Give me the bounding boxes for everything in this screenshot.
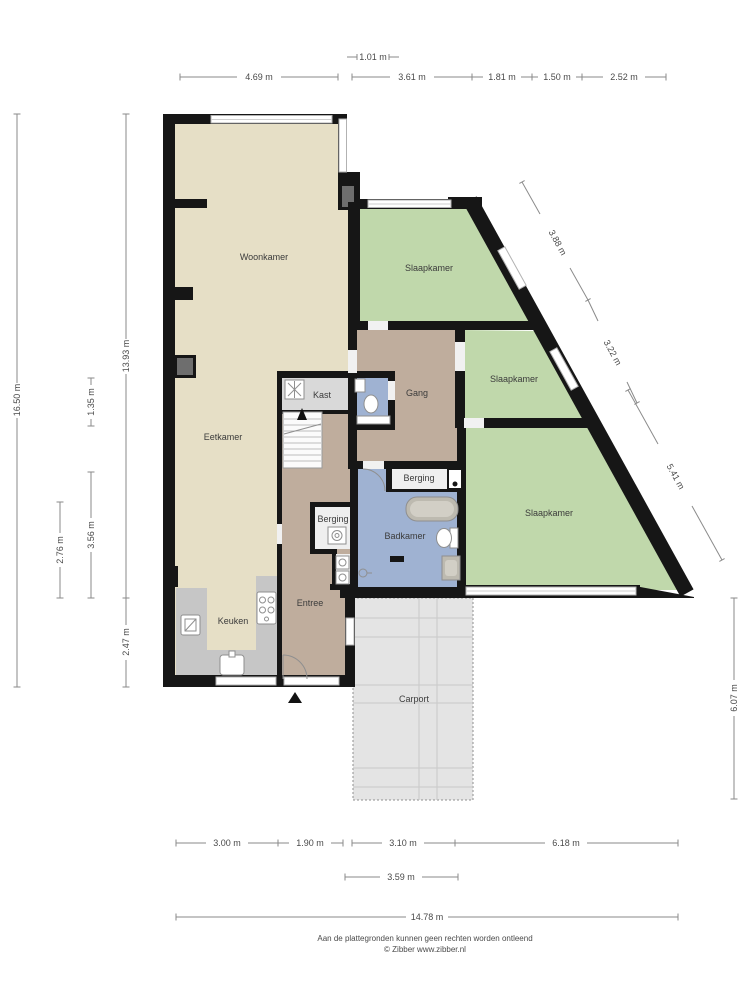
dim-label-1-90: 1.90 m (296, 838, 324, 848)
dim-label-13-93: 13.93 m (121, 340, 131, 373)
window-entree-side (346, 618, 354, 645)
label-woonkamer: Woonkamer (240, 252, 288, 262)
dim-label-14-78: 14.78 m (411, 912, 444, 922)
boiler-icon (448, 469, 462, 489)
floorplan-svg: Woonkamer Slaapkamer Slaapkamer Slaapkam… (0, 0, 750, 1000)
bathtub-icon (406, 497, 458, 521)
dim-label-3-22: 3.22 m (602, 338, 624, 367)
dim-left-column: 16.50 m 13.93 m 2.47 m 1.35 m 3.56 m 2.7… (12, 114, 131, 687)
door-slaapkamer-bottom (464, 418, 484, 428)
bathroom-toilet-icon (437, 528, 459, 548)
entrance-arrow-icon (288, 692, 302, 703)
room-slaapkamer-bottom-floor (462, 424, 681, 590)
dim-top-row: 4.69 m 3.61 m 1.81 m 1.50 m 2.52 m (180, 72, 666, 82)
stairs (283, 408, 322, 468)
flue-left (177, 358, 193, 375)
kitchen-counter-right (256, 576, 278, 678)
window-keuken-bottom (216, 677, 276, 685)
dim-label-6-07: 6.07 m (729, 684, 739, 712)
door-badkamer (363, 461, 384, 469)
door-slaapkamer-top (368, 321, 388, 330)
dim-label-3-59: 3.59 m (387, 872, 415, 882)
dim-label-3-56: 3.56 m (86, 521, 96, 549)
kitchen-sink-icon (220, 651, 244, 675)
dim-bottom-rows: 3.00 m 1.90 m 3.10 m 6.18 m 3.59 m 14.78… (176, 838, 678, 922)
fridge-icon (181, 615, 200, 635)
dim-label-3-88: 3.88 m (547, 228, 569, 257)
window-entree-bottom (284, 677, 339, 685)
window-woonkamer-corner (339, 119, 347, 172)
door-eetkamer-hal (277, 524, 282, 544)
dim-label-6-18: 6.18 m (552, 838, 580, 848)
dim-label-2-47: 2.47 m (121, 628, 131, 656)
dim-label-2-76: 2.76 m (55, 536, 65, 564)
footer-credit: © Zibber www.zibber.nl (384, 945, 466, 954)
dim-label-1-50: 1.50 m (543, 72, 571, 82)
dim-label-16-50: 16.50 m (12, 384, 22, 417)
dim-label-3-61: 3.61 m (398, 72, 426, 82)
label-eetkamer: Eetkamer (204, 432, 243, 442)
label-carport: Carport (399, 694, 430, 704)
stove-icon (257, 592, 276, 624)
dim-label-1-01: 1.01 m (359, 52, 387, 62)
label-kast: Kast (313, 390, 332, 400)
footer: Aan de plattegronden kunnen geen rechten… (317, 934, 532, 954)
label-gang: Gang (406, 388, 428, 398)
vent-unit-icon (285, 380, 304, 399)
label-badkamer: Badkamer (384, 531, 425, 541)
door-woonkamer-gang (348, 350, 357, 373)
dim-label-1-35: 1.35 m (86, 388, 96, 416)
label-slaapkamer-mid: Slaapkamer (490, 374, 538, 384)
floor-plan-page: Woonkamer Slaapkamer Slaapkamer Slaapkam… (0, 0, 750, 1000)
bathroom-sink-icon (442, 556, 460, 580)
footer-disclaimer: Aan de plattegronden kunnen geen rechten… (317, 934, 532, 943)
dim-label-2-52: 2.52 m (610, 72, 638, 82)
dim-label-1-81: 1.81 m (488, 72, 516, 82)
dim-label-4-69: 4.69 m (245, 72, 273, 82)
washer-icon (328, 527, 346, 544)
label-slaapkamer-bottom: Slaapkamer (525, 508, 573, 518)
label-entree: Entree (297, 598, 324, 608)
dim-top-offset: 1.01 m (347, 52, 399, 62)
dim-label-3-10: 3.10 m (389, 838, 417, 848)
label-berging-hal: Berging (317, 514, 348, 524)
dim-label-3-00: 3.00 m (213, 838, 241, 848)
door-slaapkamer-mid (455, 342, 465, 371)
dim-label-5-41: 5.41 m (665, 462, 687, 491)
label-slaapkamer-top: Slaapkamer (405, 263, 453, 273)
door-toilet (388, 381, 395, 400)
label-berging-gang: Berging (403, 473, 434, 483)
label-keuken: Keuken (218, 616, 249, 626)
